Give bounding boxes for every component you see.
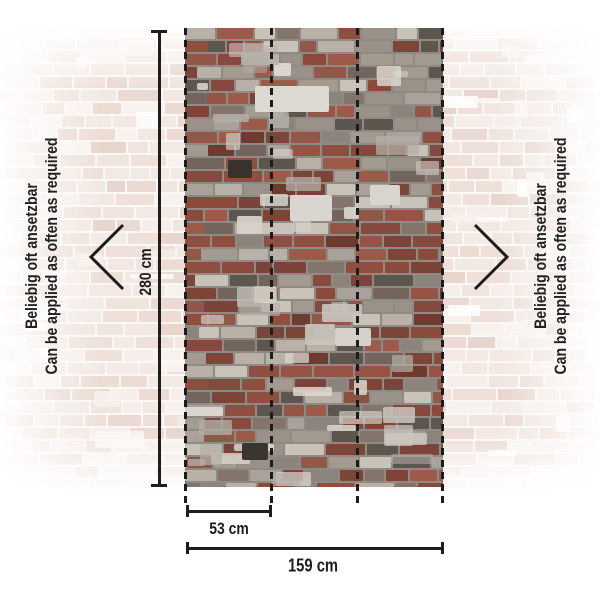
brick-texture-tile bbox=[97, 155, 129, 166]
brick-texture-tile bbox=[569, 480, 590, 491]
brick-texture-tile bbox=[467, 168, 489, 179]
brick-texture-tile bbox=[505, 415, 523, 426]
brick-texture-tile bbox=[340, 80, 366, 91]
brick-texture-tile bbox=[378, 493, 411, 497]
brick-texture-tile bbox=[62, 116, 84, 127]
brick-texture-tile bbox=[79, 129, 115, 140]
brick-texture-tile bbox=[61, 155, 95, 166]
wallpaper-panel-image bbox=[185, 28, 443, 487]
brick-texture-tile bbox=[386, 470, 408, 481]
brick-texture-tile bbox=[415, 275, 443, 286]
plaster-patch bbox=[199, 420, 231, 434]
brick-texture-tile bbox=[60, 415, 83, 426]
brick-texture-tile bbox=[93, 103, 121, 114]
brick-texture-tile bbox=[533, 467, 575, 478]
brick-texture-tile bbox=[0, 337, 24, 348]
panel-seam-dashed-line bbox=[184, 28, 187, 503]
brick-texture-tile bbox=[500, 155, 523, 166]
brick-texture-tile bbox=[215, 366, 247, 377]
brick-texture-tile bbox=[294, 236, 324, 247]
brick-texture-tile bbox=[544, 25, 583, 36]
brick-texture-tile bbox=[61, 376, 79, 387]
brick-texture-tile bbox=[421, 41, 438, 52]
brick-texture-tile bbox=[185, 132, 217, 143]
brick-texture-tile bbox=[356, 483, 394, 487]
brick-texture-tile bbox=[215, 184, 242, 195]
brick-texture-tile bbox=[247, 392, 279, 403]
wall-detail bbox=[335, 328, 371, 346]
brick-texture-tile bbox=[284, 405, 304, 416]
brick-texture-tile bbox=[356, 106, 389, 117]
brick-texture-tile bbox=[595, 337, 600, 348]
brick-texture-tile bbox=[185, 340, 222, 351]
brick-texture-tile bbox=[225, 405, 255, 416]
brick-texture-tile bbox=[116, 194, 154, 205]
brick-texture-tile bbox=[303, 54, 326, 65]
brick-texture-tile bbox=[136, 207, 178, 218]
brick-texture-tile bbox=[397, 28, 417, 39]
plaster-patch bbox=[514, 100, 528, 118]
brick-texture-tile bbox=[9, 116, 29, 127]
brick-texture-tile bbox=[439, 454, 476, 465]
brick-texture-tile bbox=[185, 106, 209, 117]
brick-texture-tile bbox=[404, 392, 431, 403]
brick-texture-tile bbox=[474, 155, 498, 166]
brick-texture-tile bbox=[596, 51, 600, 62]
right-repeat-note-en: Can be applied as often as required bbox=[551, 138, 571, 375]
brick-texture-tile bbox=[22, 428, 57, 439]
brick-texture-tile bbox=[0, 181, 23, 192]
brick-texture-tile bbox=[207, 93, 226, 104]
brick-texture-tile bbox=[589, 259, 600, 270]
brick-texture-tile bbox=[224, 340, 255, 351]
brick-texture-tile bbox=[66, 103, 91, 114]
brick-texture-tile bbox=[0, 389, 43, 400]
brick-texture-tile bbox=[106, 298, 149, 309]
brick-texture-tile bbox=[103, 311, 137, 322]
brick-texture-tile bbox=[185, 119, 214, 130]
brick-texture-tile bbox=[498, 389, 535, 400]
brick-texture-tile bbox=[85, 350, 122, 361]
brick-texture-tile bbox=[123, 402, 141, 413]
brick-texture-tile bbox=[65, 25, 96, 36]
brick-texture-tile bbox=[508, 25, 542, 36]
brick-texture-tile bbox=[382, 314, 412, 325]
brick-texture-tile bbox=[578, 155, 600, 166]
brick-texture-tile bbox=[462, 142, 498, 153]
brick-texture-tile bbox=[201, 249, 237, 260]
brick-texture-tile bbox=[20, 51, 46, 62]
brick-texture-tile bbox=[411, 288, 438, 299]
brick-texture-tile bbox=[355, 210, 383, 221]
brick-texture-tile bbox=[440, 480, 467, 491]
brick-texture-tile bbox=[327, 184, 355, 195]
brick-texture-tile bbox=[242, 379, 265, 390]
height-dimension-label: 280 cm bbox=[136, 248, 156, 295]
brick-texture-tile bbox=[199, 327, 219, 338]
brick-texture-tile bbox=[306, 405, 326, 416]
brick-texture-tile bbox=[145, 441, 185, 452]
brick-texture-tile bbox=[236, 145, 266, 156]
brick-texture-tile bbox=[185, 184, 213, 195]
brick-texture-tile bbox=[577, 285, 600, 296]
brick-texture-tile bbox=[260, 223, 294, 234]
brick-texture-tile bbox=[371, 392, 402, 403]
plaster-patch bbox=[391, 454, 432, 464]
brick-texture-tile bbox=[346, 262, 383, 273]
plaster-patch bbox=[136, 112, 158, 127]
brick-texture-tile bbox=[476, 428, 517, 439]
brick-texture-tile bbox=[195, 275, 228, 286]
brick-texture-tile bbox=[249, 366, 279, 377]
brick-texture-tile bbox=[414, 301, 443, 312]
plaster-patch bbox=[524, 55, 560, 61]
brick-texture-tile bbox=[259, 158, 295, 169]
brick-texture-tile bbox=[35, 376, 59, 387]
panel-width-dimension-line bbox=[186, 510, 272, 513]
brick-texture-tile bbox=[587, 350, 600, 361]
brick-texture-tile bbox=[570, 363, 600, 374]
brick-texture-tile bbox=[131, 168, 149, 179]
brick-texture-tile bbox=[364, 301, 393, 312]
brick-texture-tile bbox=[293, 301, 313, 312]
brick-texture-tile bbox=[489, 129, 513, 140]
brick-texture-tile bbox=[239, 249, 268, 260]
brick-texture-tile bbox=[12, 64, 52, 75]
brick-texture-tile bbox=[402, 223, 425, 234]
brick-texture-tile bbox=[469, 480, 500, 491]
brick-texture-tile bbox=[114, 337, 134, 348]
brick-texture-tile bbox=[314, 366, 353, 377]
brick-texture-tile bbox=[453, 389, 496, 400]
brick-texture-tile bbox=[77, 38, 119, 49]
brick-texture-tile bbox=[54, 402, 89, 413]
brick-texture-tile bbox=[463, 467, 489, 478]
brick-texture-tile bbox=[360, 457, 391, 468]
brick-texture-tile bbox=[517, 64, 544, 75]
height-dimension-line bbox=[158, 30, 161, 487]
brick-texture-tile bbox=[322, 145, 349, 156]
plaster-patch bbox=[201, 315, 223, 325]
brick-texture-tile bbox=[125, 467, 153, 478]
brick-texture-tile bbox=[566, 77, 600, 88]
plaster-patch bbox=[42, 490, 66, 497]
brick-texture-tile bbox=[231, 493, 250, 497]
brick-texture-tile bbox=[218, 470, 248, 481]
brick-texture-tile bbox=[585, 25, 600, 36]
plaster-patch bbox=[567, 106, 586, 123]
brick-texture-tile bbox=[384, 379, 403, 390]
brick-texture-tile bbox=[545, 376, 579, 387]
plaster-patch bbox=[213, 114, 249, 123]
brick-texture-tile bbox=[594, 415, 600, 426]
brick-texture-tile bbox=[361, 54, 393, 65]
brick-texture-tile bbox=[586, 64, 600, 75]
brick-texture-tile bbox=[332, 431, 358, 442]
brick-texture-tile bbox=[419, 28, 443, 39]
brick-texture-tile bbox=[573, 220, 600, 231]
brick-texture-tile bbox=[40, 77, 72, 88]
brick-texture-tile bbox=[291, 145, 320, 156]
brick-texture-tile bbox=[348, 67, 376, 78]
brick-texture-tile bbox=[456, 116, 493, 127]
brick-texture-tile bbox=[44, 467, 73, 478]
brick-texture-tile bbox=[124, 350, 153, 361]
brick-texture-tile bbox=[300, 41, 316, 52]
plaster-patch bbox=[286, 177, 321, 191]
brick-texture-tile bbox=[381, 327, 409, 338]
brick-texture-tile bbox=[121, 376, 147, 387]
plaster-patch bbox=[241, 54, 279, 65]
brick-texture-tile bbox=[470, 493, 501, 497]
brick-texture-tile bbox=[405, 379, 435, 390]
brick-texture-tile bbox=[19, 402, 52, 413]
brick-texture-tile bbox=[91, 64, 124, 75]
brick-texture-tile bbox=[592, 168, 600, 179]
brick-texture-tile bbox=[395, 119, 416, 130]
brick-texture-tile bbox=[221, 327, 255, 338]
brick-texture-tile bbox=[570, 246, 589, 257]
brick-texture-tile bbox=[547, 493, 579, 497]
brick-texture-tile bbox=[411, 327, 442, 338]
brick-texture-tile bbox=[288, 418, 304, 429]
brick-texture-tile bbox=[43, 103, 64, 114]
brick-texture-tile bbox=[78, 493, 111, 497]
brick-texture-tile bbox=[289, 249, 326, 260]
brick-texture-tile bbox=[337, 288, 371, 299]
brick-texture-tile bbox=[411, 184, 430, 195]
plaster-patch bbox=[185, 407, 223, 415]
brick-texture-tile bbox=[385, 210, 423, 221]
brick-texture-tile bbox=[593, 233, 600, 244]
brick-texture-tile bbox=[75, 467, 98, 478]
brick-texture-tile bbox=[455, 38, 496, 49]
brick-texture-tile bbox=[405, 93, 440, 104]
brick-texture-tile bbox=[568, 194, 600, 205]
brick-texture-tile bbox=[280, 288, 314, 299]
panel-width-cap-right bbox=[269, 505, 272, 517]
brick-texture-tile bbox=[59, 428, 90, 439]
brick-texture-tile bbox=[81, 376, 119, 387]
brick-texture-tile bbox=[118, 90, 161, 101]
brick-texture-tile bbox=[463, 194, 489, 205]
brick-texture-tile bbox=[388, 158, 419, 169]
brick-texture-tile bbox=[35, 415, 58, 426]
brick-texture-tile bbox=[149, 376, 189, 387]
brick-texture-tile bbox=[127, 181, 156, 192]
brick-texture-tile bbox=[567, 402, 595, 413]
brick-texture-tile bbox=[340, 470, 363, 481]
brick-texture-tile bbox=[113, 493, 138, 497]
brick-texture-tile bbox=[497, 337, 516, 348]
brick-texture-tile bbox=[264, 236, 292, 247]
brick-texture-tile bbox=[271, 457, 299, 468]
brick-texture-tile bbox=[532, 441, 571, 452]
panel-width-dimension-label: 53 cm bbox=[209, 519, 249, 539]
brick-texture-tile bbox=[205, 210, 227, 221]
brick-texture-tile bbox=[7, 38, 44, 49]
brick-texture-tile bbox=[586, 311, 600, 322]
brick-texture-tile bbox=[558, 454, 578, 465]
brick-texture-tile bbox=[291, 132, 320, 143]
panel-seam-dashed-line bbox=[356, 28, 359, 503]
wall-detail bbox=[242, 443, 268, 460]
total-width-dimension-line bbox=[186, 547, 444, 550]
brick-texture-tile bbox=[31, 116, 60, 127]
brick-texture-tile bbox=[212, 392, 245, 403]
brick-texture-tile bbox=[297, 158, 321, 169]
brick-texture-tile bbox=[208, 379, 240, 390]
plaster-patch bbox=[305, 324, 335, 345]
brick-texture-tile bbox=[78, 181, 105, 192]
brick-texture-tile bbox=[559, 90, 595, 101]
plaster-patch bbox=[197, 83, 208, 90]
brick-texture-tile bbox=[296, 119, 333, 130]
plaster-patch bbox=[94, 391, 120, 407]
brick-texture-tile bbox=[12, 90, 52, 101]
plaster-patch bbox=[226, 133, 240, 150]
brick-texture-tile bbox=[388, 249, 416, 260]
brick-texture-tile bbox=[577, 467, 598, 478]
brick-texture-tile bbox=[128, 142, 148, 153]
brick-texture-tile bbox=[32, 441, 50, 452]
brick-texture-tile bbox=[442, 428, 474, 439]
brick-texture-tile bbox=[142, 220, 171, 231]
brick-texture-tile bbox=[592, 480, 600, 491]
brick-texture-tile bbox=[413, 493, 438, 497]
plaster-patch bbox=[448, 305, 480, 316]
brick-texture-tile bbox=[581, 129, 600, 140]
brick-texture-tile bbox=[151, 298, 184, 309]
brick-texture-tile bbox=[344, 93, 364, 104]
brick-texture-tile bbox=[411, 262, 442, 273]
brick-texture-tile bbox=[423, 132, 442, 143]
brick-texture-tile bbox=[191, 171, 222, 182]
brick-texture-tile bbox=[361, 223, 400, 234]
panel-width-cap-left bbox=[186, 505, 189, 517]
brick-texture-tile bbox=[301, 457, 327, 468]
brick-texture-tile bbox=[83, 168, 103, 179]
brick-texture-tile bbox=[273, 493, 309, 497]
brick-texture-tile bbox=[391, 106, 413, 117]
brick-texture-tile bbox=[107, 77, 127, 88]
plaster-patch bbox=[118, 40, 153, 56]
brick-texture-tile bbox=[206, 353, 233, 364]
brick-texture-tile bbox=[461, 64, 483, 75]
brick-texture-tile bbox=[200, 483, 224, 487]
brick-texture-tile bbox=[393, 41, 419, 52]
brick-texture-tile bbox=[217, 28, 253, 39]
height-dimension-cap-bottom bbox=[151, 484, 167, 487]
brick-texture-tile bbox=[374, 275, 413, 286]
brick-texture-tile bbox=[410, 470, 437, 481]
brick-texture-tile bbox=[318, 41, 354, 52]
brick-texture-tile bbox=[581, 376, 600, 387]
panel-seam-dashed-line bbox=[270, 28, 273, 503]
brick-texture-tile bbox=[108, 415, 141, 426]
brick-texture-tile bbox=[241, 132, 264, 143]
brick-texture-tile bbox=[185, 54, 216, 65]
brick-texture-tile bbox=[68, 311, 101, 322]
brick-texture-tile bbox=[492, 402, 525, 413]
brick-texture-tile bbox=[468, 337, 495, 348]
brick-texture-tile bbox=[185, 288, 216, 299]
brick-texture-tile bbox=[277, 28, 299, 39]
brick-texture-tile bbox=[351, 275, 372, 286]
total-width-cap-right bbox=[441, 542, 444, 554]
brick-texture-tile bbox=[362, 158, 386, 169]
wall-detail bbox=[228, 160, 252, 178]
plaster-patch bbox=[383, 407, 415, 422]
brick-texture-tile bbox=[329, 457, 358, 468]
right-repeat-note-de: Beliebig oft ansetzbar bbox=[531, 138, 551, 375]
brick-texture-tile bbox=[0, 233, 19, 244]
brick-texture-tile bbox=[185, 158, 224, 169]
brick-texture-tile bbox=[222, 262, 254, 273]
wallpaper-product-visualization: 280 cm 53 cm 159 cm Beliebig oft ansetzb… bbox=[0, 0, 600, 600]
brick-texture-tile bbox=[230, 275, 257, 286]
plaster-patch bbox=[471, 98, 499, 103]
brick-texture-tile bbox=[237, 236, 262, 247]
plaster-patch bbox=[339, 411, 382, 424]
brick-texture-tile bbox=[0, 51, 18, 62]
brick-texture-tile bbox=[98, 25, 128, 36]
brick-texture-tile bbox=[523, 493, 545, 497]
brick-texture-tile bbox=[128, 233, 159, 244]
brick-texture-tile bbox=[195, 493, 229, 497]
brick-texture-tile bbox=[86, 116, 111, 127]
brick-texture-tile bbox=[126, 64, 168, 75]
plaster-patch bbox=[260, 194, 288, 206]
brick-texture-tile bbox=[401, 340, 421, 351]
brick-texture-tile bbox=[328, 54, 359, 65]
brick-texture-tile bbox=[442, 168, 465, 179]
brick-texture-tile bbox=[360, 431, 384, 442]
brick-texture-tile bbox=[335, 171, 357, 182]
brick-texture-tile bbox=[326, 236, 358, 247]
brick-texture-tile bbox=[413, 236, 443, 247]
total-width-cap-left bbox=[186, 542, 189, 554]
brick-texture-tile bbox=[415, 106, 431, 117]
brick-texture-tile bbox=[580, 298, 600, 309]
brick-texture-tile bbox=[20, 25, 63, 36]
brick-texture-tile bbox=[364, 119, 393, 130]
brick-texture-tile bbox=[117, 129, 136, 140]
brick-texture-tile bbox=[212, 236, 235, 247]
brick-texture-tile bbox=[0, 77, 38, 88]
brick-texture-tile bbox=[0, 25, 18, 36]
brick-texture-tile bbox=[418, 249, 438, 260]
brick-texture-tile bbox=[573, 441, 600, 452]
brick-texture-tile bbox=[528, 480, 567, 491]
brick-texture-tile bbox=[60, 285, 87, 296]
wall-detail bbox=[290, 195, 332, 221]
plaster-patch bbox=[392, 355, 412, 373]
brick-texture-tile bbox=[395, 301, 412, 312]
brick-texture-tile bbox=[143, 402, 165, 413]
brick-texture-tile bbox=[7, 376, 33, 387]
brick-texture-tile bbox=[326, 444, 365, 455]
brick-texture-tile bbox=[129, 77, 168, 88]
plaster-patch bbox=[384, 425, 413, 446]
brick-texture-tile bbox=[236, 431, 255, 442]
brick-texture-tile bbox=[491, 168, 511, 179]
brick-texture-tile bbox=[107, 363, 138, 374]
brick-texture-tile bbox=[527, 402, 565, 413]
brick-texture-tile bbox=[360, 236, 382, 247]
brick-texture-tile bbox=[569, 428, 600, 439]
brick-texture-tile bbox=[97, 324, 123, 335]
